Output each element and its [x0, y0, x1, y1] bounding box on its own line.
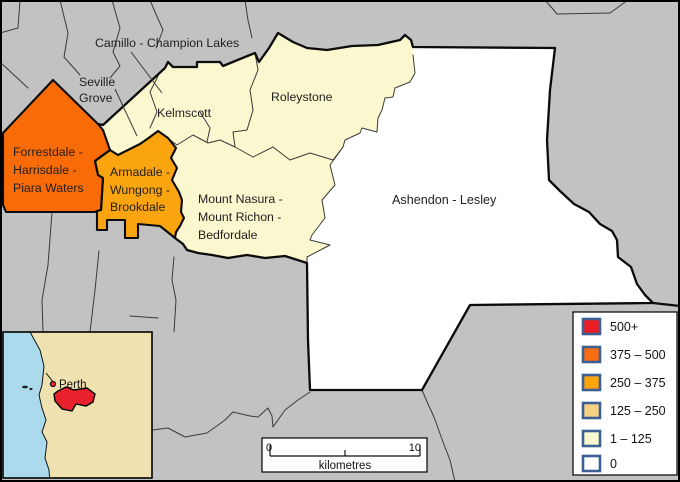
- map-figure: Camillo - Champion Lakes Seville Grove K…: [0, 0, 680, 482]
- legend-panel: [573, 312, 677, 475]
- legend: 500+ 375 – 500 250 – 375 125 – 250 1 – 1…: [573, 312, 677, 475]
- label-armadale-line1: Armadale -: [110, 165, 170, 179]
- legend-label-125-250: 125 – 250: [610, 404, 666, 418]
- label-forrestdale-line1: Forrestdale -: [13, 145, 83, 159]
- legend-item: 125 – 250: [583, 403, 666, 418]
- legend-swatch-1-125: [583, 431, 600, 446]
- legend-item: 1 – 125: [583, 431, 652, 446]
- legend-label-1-125: 1 – 125: [610, 432, 652, 446]
- perth-label: Perth: [59, 379, 87, 391]
- inset-island: [22, 386, 28, 389]
- legend-item: 500+: [583, 319, 638, 334]
- legend-item: 375 – 500: [583, 347, 666, 362]
- label-armadale-line2: Wungong -: [110, 183, 170, 197]
- legend-swatch-250-375: [583, 375, 600, 390]
- legend-swatch-125-250: [583, 403, 600, 418]
- label-mount-nasura-line3: Bedfordale: [198, 228, 258, 242]
- label-roleystone: Roleystone: [271, 90, 333, 104]
- label-camillo: Camillo - Champion Lakes: [95, 36, 239, 50]
- legend-swatch-375-500: [583, 347, 600, 362]
- label-ashendon: Ashendon - Lesley: [392, 193, 497, 207]
- legend-label-500-plus: 500+: [610, 320, 638, 334]
- legend-label-250-375: 250 – 375: [610, 376, 666, 390]
- inset-island-2: [29, 388, 32, 390]
- scale-end-label: 10: [409, 442, 421, 454]
- label-forrestdale-line2: Harrisdale -: [13, 163, 77, 177]
- legend-swatch-0: [583, 456, 600, 471]
- legend-item: 0: [583, 456, 617, 471]
- label-kelmscott: Kelmscott: [157, 106, 212, 120]
- legend-swatch-500-plus: [583, 319, 600, 334]
- legend-label-0: 0: [610, 457, 617, 471]
- choropleth-map: Camillo - Champion Lakes Seville Grove K…: [0, 0, 680, 482]
- label-mount-nasura-line2: Mount Richon -: [198, 210, 281, 224]
- label-seville-line2: Grove: [79, 91, 113, 105]
- label-armadale-line3: Brookdale: [110, 200, 166, 214]
- label-forrestdale-line3: Piara Waters: [13, 181, 84, 195]
- legend-item: 250 – 375: [583, 375, 666, 390]
- scale-start-label: 0: [266, 442, 272, 454]
- label-mount-nasura-line1: Mount Nasura -: [198, 192, 283, 206]
- perth-city-dot: [50, 381, 55, 386]
- scale-bar: 0 10 kilometres: [262, 438, 427, 472]
- label-seville-line1: Seville: [79, 75, 115, 89]
- legend-label-375-500: 375 – 500: [610, 348, 666, 362]
- inset-map: Perth: [3, 332, 152, 482]
- scale-unit-label: kilometres: [319, 460, 372, 472]
